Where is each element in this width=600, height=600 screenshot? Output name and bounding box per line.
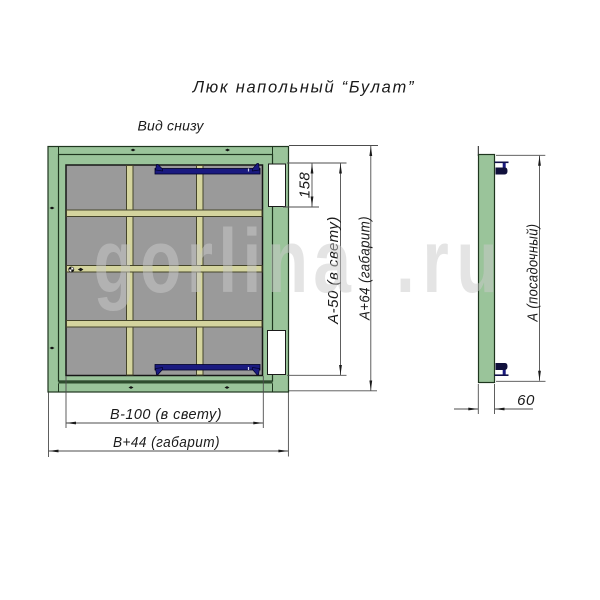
svg-text:158: 158 [297,172,314,199]
svg-text:А+64 (габарит): А+64 (габарит) [357,216,374,321]
svg-text:В-100 (в свету): В-100 (в свету) [110,406,222,423]
svg-text:gorlina: gorlina [94,211,357,312]
svg-text:.ru: .ru [396,211,505,312]
svg-text:Люк напольный “Булат”: Люк напольный “Булат” [192,79,415,97]
svg-text:60: 60 [517,392,535,409]
svg-text:А (посадочный): А (посадочный) [525,224,542,323]
svg-text:Вид снизу: Вид снизу [138,118,205,134]
svg-text:В+44 (габарит): В+44 (габарит) [113,434,220,451]
